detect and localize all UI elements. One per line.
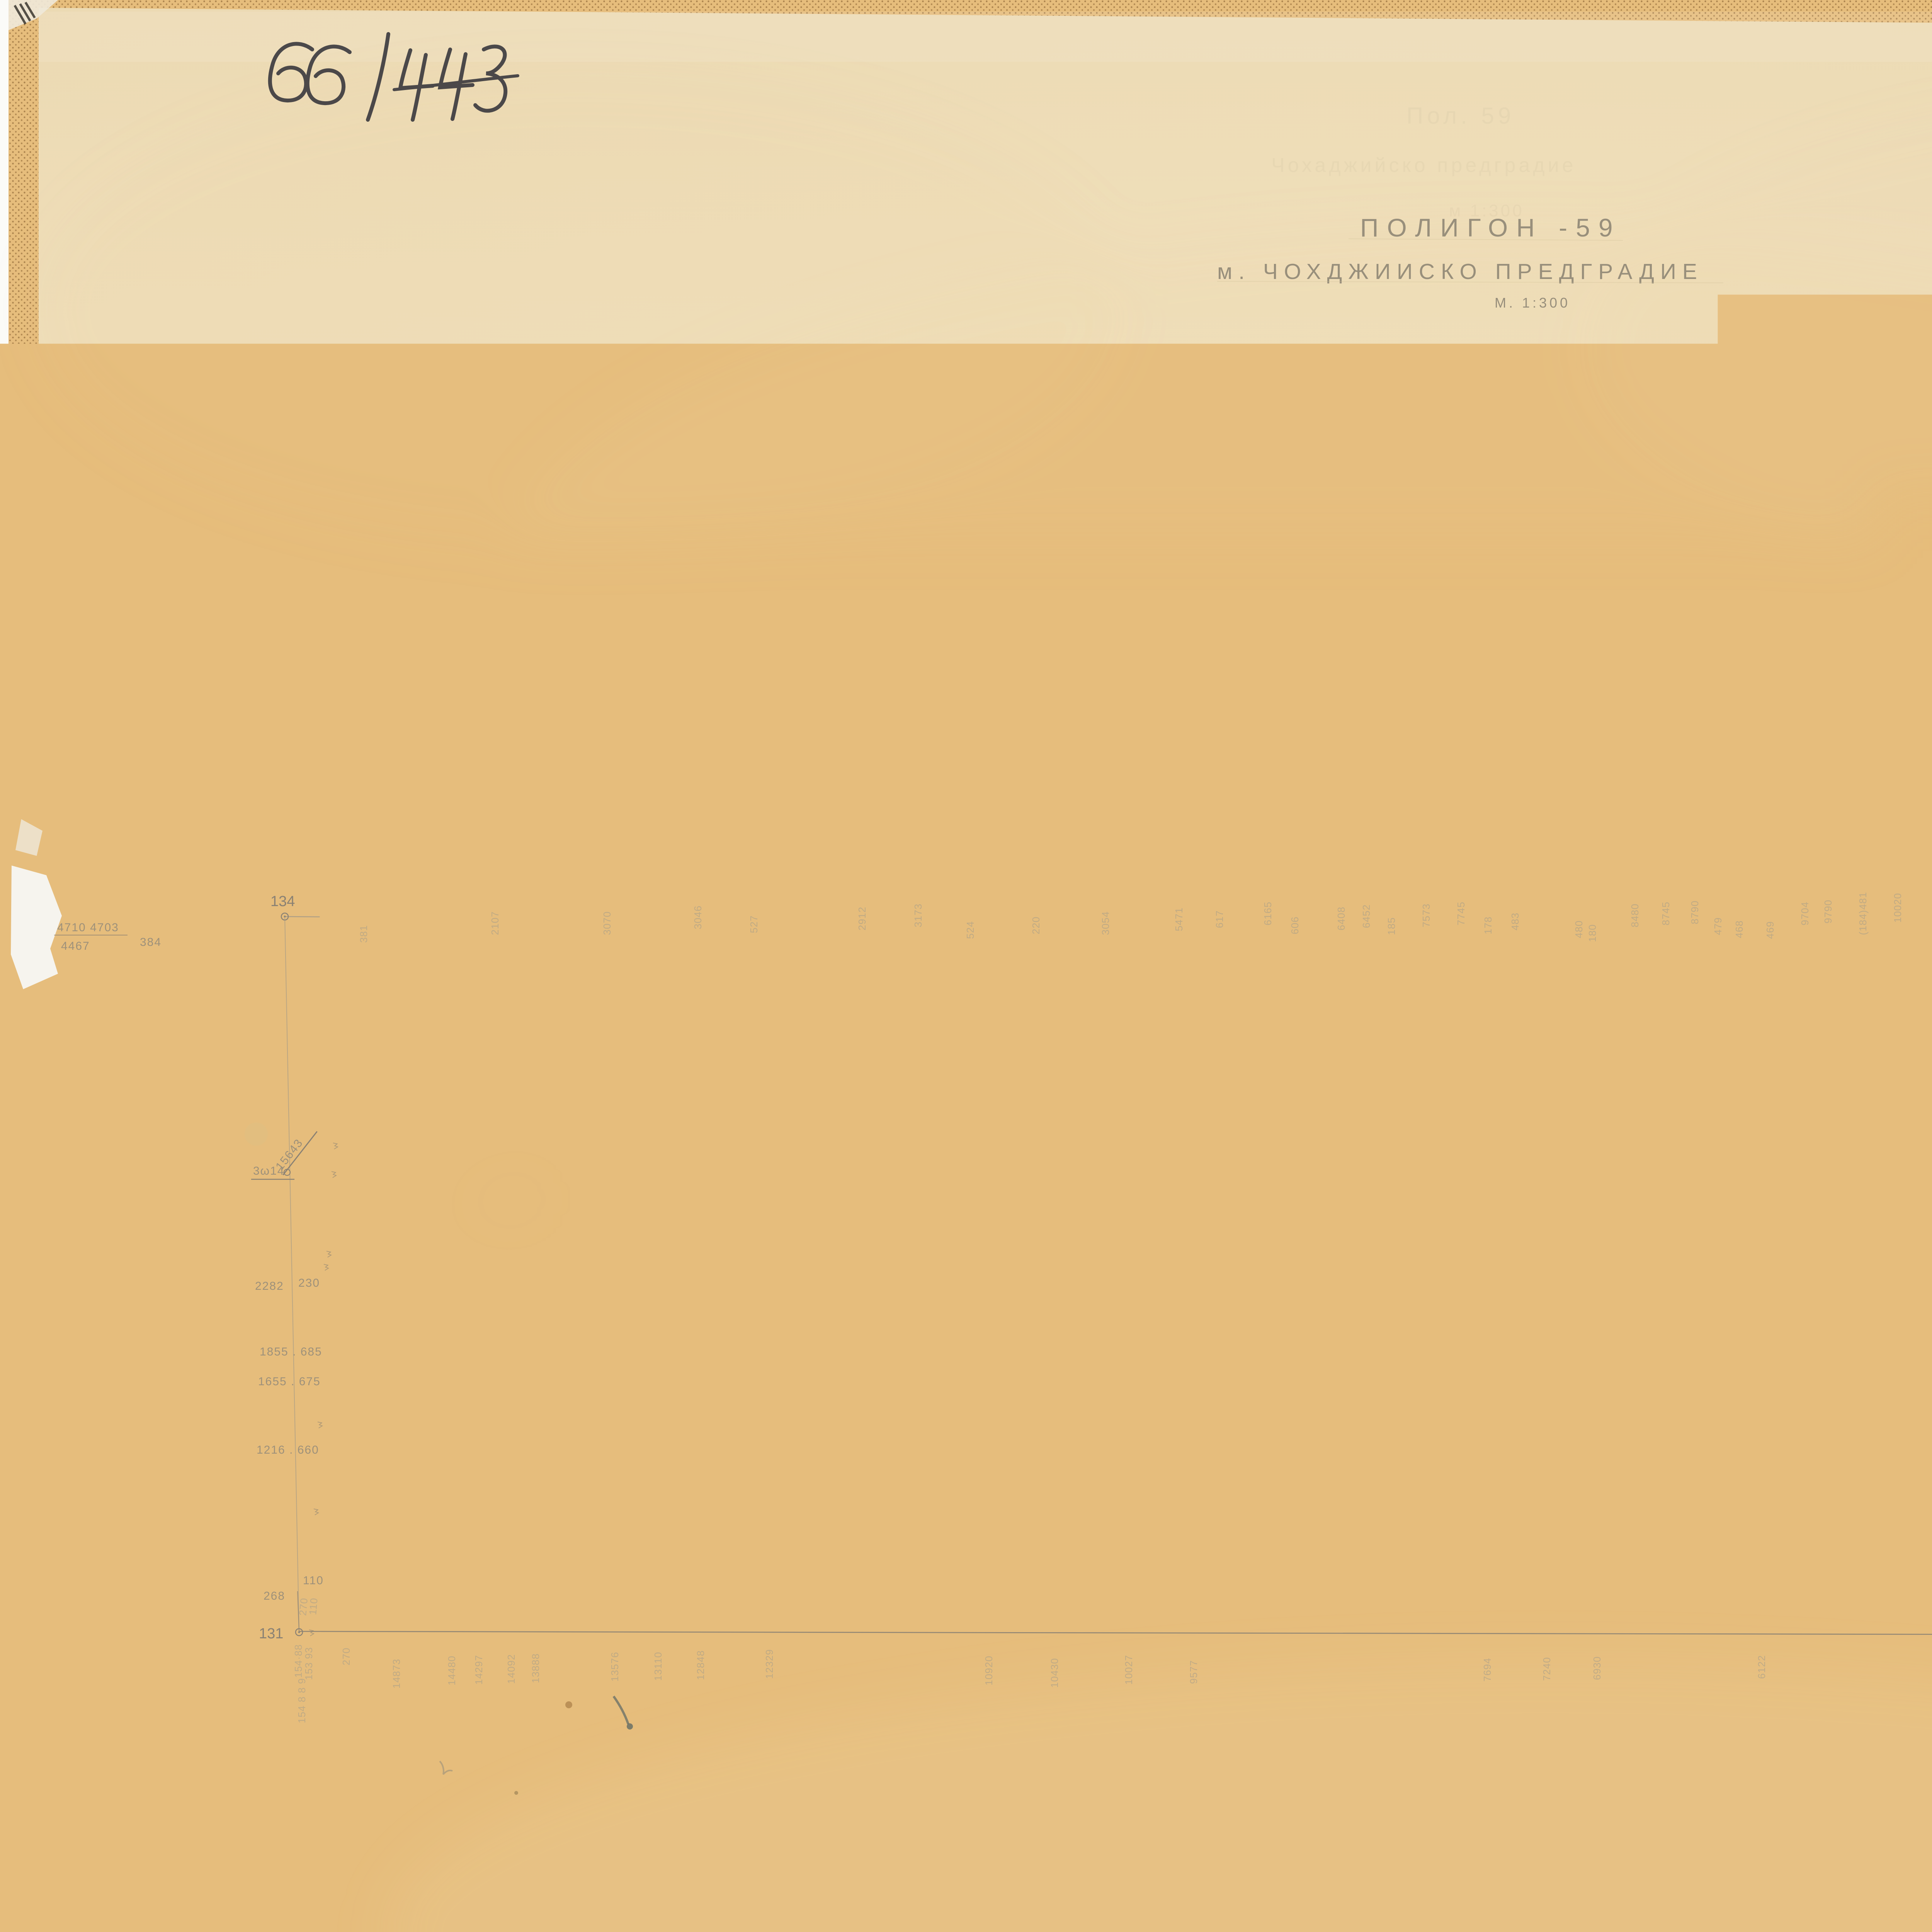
svg-text:2282: 2282 xyxy=(255,1280,284,1293)
svg-text:-285-: -285- xyxy=(1119,1417,1132,1448)
svg-text:-200-: -200- xyxy=(378,1340,391,1371)
svg-text:-504-: -504- xyxy=(1533,1098,1564,1111)
svg-text:Петър Георгиев Николов: Петър Георгиев Николов xyxy=(555,1410,754,1427)
svg-text:-805-: -805- xyxy=(1196,1371,1209,1402)
svg-text:273: 273 xyxy=(645,1357,658,1379)
svg-text:на N 15 XVIII дело 3174/: на N 15 XVIII дело 3174/55г. xyxy=(347,1558,547,1572)
svg-text:10920: 10920 xyxy=(983,1656,995,1685)
svg-text:7240: 7240 xyxy=(1541,1657,1553,1681)
svg-text:ПБ: ПБ xyxy=(1584,1027,1609,1042)
svg-text:12329: 12329 xyxy=(764,1649,775,1679)
svg-text:1417: 1417 xyxy=(1477,1092,1506,1105)
svg-text:-694-: -694- xyxy=(1162,1000,1193,1013)
svg-text:14092: 14092 xyxy=(505,1654,517,1684)
svg-text:-305-: -305- xyxy=(1537,1363,1550,1394)
svg-text:МЖ: МЖ xyxy=(1673,1404,1708,1422)
svg-text:154 8 8 9: 154 8 8 9 xyxy=(296,1678,308,1723)
svg-text:-457-: -457- xyxy=(726,1017,739,1048)
svg-text:270: 270 xyxy=(340,1648,352,1665)
svg-text:14480: 14480 xyxy=(446,1656,457,1685)
svg-text:Пол. 59: Пол. 59 xyxy=(1406,103,1515,129)
svg-text:185: 185 xyxy=(1386,917,1397,935)
svg-text:1074: 1074 xyxy=(514,1602,526,1626)
svg-text:1073: 1073 xyxy=(537,1603,549,1627)
svg-text:-1833-: -1833- xyxy=(1627,1604,1665,1617)
svg-text:-177-: -177- xyxy=(1806,1067,1819,1098)
svg-text:Панайотов: Панайотов xyxy=(422,1531,522,1550)
svg-text:4: 4 xyxy=(1491,1184,1502,1205)
svg-text:1294: 1294 xyxy=(1549,1615,1560,1639)
svg-text:-635-: -635- xyxy=(1526,984,1557,997)
svg-text:-634-: -634- xyxy=(1615,1032,1628,1063)
svg-text:9577: 9577 xyxy=(1188,1660,1199,1684)
svg-text:-230-: -230- xyxy=(1784,986,1815,999)
svg-text:10430: 10430 xyxy=(1049,1658,1060,1688)
svg-text:-2792-: -2792- xyxy=(560,934,599,946)
svg-text:345: 345 xyxy=(1222,1094,1235,1116)
svg-text:8480: 8480 xyxy=(1629,903,1641,927)
svg-text:МЖ: МЖ xyxy=(1153,1050,1188,1068)
svg-text:МЖ: МЖ xyxy=(1509,1026,1544,1044)
svg-text:6408: 6408 xyxy=(1335,906,1347,930)
svg-text:-3226-: -3226- xyxy=(1274,1605,1312,1618)
svg-text:3054: 3054 xyxy=(1100,911,1111,935)
svg-text:6122: 6122 xyxy=(1756,1655,1767,1679)
svg-text:-348-: -348- xyxy=(1904,1090,1932,1103)
svg-text:Йордан: Йордан xyxy=(833,1104,900,1124)
svg-text:10020: 10020 xyxy=(1892,893,1903,923)
svg-text:-439-: -439- xyxy=(509,1396,521,1427)
svg-text:252-: 252- xyxy=(682,1067,694,1094)
svg-text:-243-: -243- xyxy=(1238,998,1269,1010)
svg-text:1417: 1417 xyxy=(1121,1611,1133,1634)
svg-text:1255: 1255 xyxy=(1746,1617,1757,1641)
svg-text:1216 . 660: 1216 . 660 xyxy=(257,1444,319,1456)
svg-text:-252-: -252- xyxy=(627,1340,658,1353)
svg-text:ПБ: ПБ xyxy=(1570,1375,1594,1389)
svg-text:805-: 805- xyxy=(663,981,689,994)
svg-text:-332-: -332- xyxy=(662,1106,692,1119)
svg-text:НА 136 том V 836/54: НА 136 том V 836/54 xyxy=(1107,1197,1255,1212)
svg-text:ПБ: ПБ xyxy=(418,1357,441,1371)
svg-text:178: 178 xyxy=(1482,917,1494,934)
svg-text:Станчо Петков Карпаров: Станчо Петков Карпаров xyxy=(1692,1150,1925,1169)
svg-text:М. 1:300: М. 1:300 xyxy=(1495,295,1570,311)
svg-text:ПОЛИГОН -59: ПОЛИГОН -59 xyxy=(1360,213,1621,242)
svg-text:480: 480 xyxy=(1573,920,1585,938)
svg-text:-253-: -253- xyxy=(1784,1113,1815,1126)
svg-text:134: 134 xyxy=(270,893,295,910)
svg-text:-1427-: -1427- xyxy=(1855,939,1893,952)
svg-text:8790: 8790 xyxy=(1689,900,1701,924)
svg-text:Методи Асенов Алексов: Методи Асенов Алексов xyxy=(1189,1492,1403,1512)
svg-text:230: 230 xyxy=(298,1277,320,1289)
svg-text:3173: 3173 xyxy=(912,903,924,927)
svg-text:-728-: -728- xyxy=(1760,1036,1772,1067)
svg-text:13576: 13576 xyxy=(609,1652,621,1682)
svg-text:2107: 2107 xyxy=(489,911,501,935)
svg-text:1655 . 675: 1655 . 675 xyxy=(258,1375,321,1388)
svg-text:-1217-: -1217- xyxy=(1533,939,1571,952)
svg-text:381: 381 xyxy=(358,925,369,943)
svg-text:-914-: -914- xyxy=(1708,940,1739,952)
svg-text:н.а.: н.а. xyxy=(1314,1172,1337,1185)
svg-text:-449-: -449- xyxy=(1185,1138,1216,1151)
svg-text:на N 96 том XII дело 2076/: на N 96 том XII дело 2076/55г. xyxy=(1614,1493,1832,1507)
svg-text:268: 268 xyxy=(264,1590,285,1602)
svg-text:-484-: -484- xyxy=(1846,984,1877,997)
svg-text:156-: 156- xyxy=(437,1443,450,1469)
svg-text:-420: -420 xyxy=(361,1189,374,1211)
svg-text:-021-: -021- xyxy=(370,1227,384,1253)
svg-text:1916: 1916 xyxy=(686,1605,698,1629)
svg-text:617: 617 xyxy=(1214,910,1225,928)
svg-text:130: 130 xyxy=(1500,1069,1513,1090)
svg-text:Борис Светозаров: Борис Светозаров xyxy=(327,1509,492,1528)
svg-text:Любомир Иванов Милачов: Любомир Иванов Милачов xyxy=(1189,1469,1423,1488)
svg-text:-390-: -390- xyxy=(410,1445,441,1458)
svg-text:-544-: -544- xyxy=(1100,1044,1112,1075)
svg-text:-262-: -262- xyxy=(1591,1097,1622,1109)
svg-text:Живко Петров Димитр.: Живко Петров Димитр. xyxy=(788,1409,980,1426)
svg-text:-1398-: -1398- xyxy=(1180,936,1219,949)
svg-text:ПЖ: ПЖ xyxy=(1228,1041,1252,1053)
svg-text:-1121-: -1121- xyxy=(1371,934,1408,947)
svg-text:220-: 220- xyxy=(1594,1408,1607,1434)
svg-text:3ω14: 3ω14 xyxy=(253,1165,284,1177)
svg-text:-439-: -439- xyxy=(376,1396,389,1427)
svg-text:Георгиев: Георгиев xyxy=(1125,1175,1204,1195)
svg-text:468: 468 xyxy=(1733,920,1745,938)
svg-text:110: 110 xyxy=(303,1574,324,1587)
svg-text:ПЖ: ПЖ xyxy=(1835,1033,1860,1046)
svg-text:606: 606 xyxy=(1289,917,1301,934)
svg-text:13110: 13110 xyxy=(652,1652,664,1681)
svg-text:ПЖ: ПЖ xyxy=(454,1454,475,1465)
svg-text:212: 212 xyxy=(840,1614,852,1631)
svg-text:6165: 6165 xyxy=(1262,901,1274,925)
svg-text:8745: 8745 xyxy=(1660,901,1672,925)
svg-text:(184)481: (184)481 xyxy=(1857,892,1869,935)
svg-text:921=: 921= xyxy=(339,1235,353,1260)
svg-text:3: 3 xyxy=(1165,1212,1175,1233)
svg-text:1855 . 685: 1855 . 685 xyxy=(260,1345,322,1358)
svg-text:-2888-: -2888- xyxy=(1789,1609,1827,1622)
svg-text:-454-: -454- xyxy=(1152,1456,1183,1469)
svg-text:3070: 3070 xyxy=(601,911,613,935)
svg-text:11: 11 xyxy=(865,1470,883,1489)
svg-text:1230: 1230 xyxy=(468,1602,480,1626)
svg-text:10: 10 xyxy=(1291,1403,1310,1422)
svg-text:4806: 4806 xyxy=(1920,1696,1931,1720)
svg-text:5: 5 xyxy=(1776,1191,1786,1212)
svg-text:-521-: -521- xyxy=(1052,1359,1065,1390)
svg-text:-204-: -204- xyxy=(706,1066,737,1078)
svg-text:9790: 9790 xyxy=(1822,900,1834,923)
svg-text:4467: 4467 xyxy=(61,940,90,952)
svg-text:-196-: -196- xyxy=(455,1467,486,1480)
svg-text:1645: 1645 xyxy=(743,1606,755,1630)
svg-text:Чохаджийско предградие: Чохаджийско предградие xyxy=(1271,154,1577,177)
svg-text:-460-: -460- xyxy=(414,1332,445,1345)
svg-text:н. а.: н. а. xyxy=(1854,1173,1882,1186)
svg-text:Радка Иванова Симеонова: Радка Иванова Симеонова xyxy=(347,1008,583,1028)
svg-text:н. а. 195 XIII 265: н. а. 195 XIII 2656/55г. xyxy=(1214,1514,1376,1529)
svg-text:469: 469 xyxy=(1764,921,1776,939)
svg-text:7573: 7573 xyxy=(1420,903,1432,927)
svg-text:154·88: 154·88 xyxy=(293,1644,304,1678)
svg-text:-425-: -425- xyxy=(1767,1394,1780,1425)
svg-text:131: 131 xyxy=(259,1626,283,1642)
svg-text:12848: 12848 xyxy=(695,1650,706,1680)
svg-text:-265-: -265- xyxy=(1595,983,1626,996)
svg-text:1655: 1655 xyxy=(763,1606,774,1630)
svg-text:13888: 13888 xyxy=(530,1653,541,1683)
svg-text:Петър Велков Цоков: Петър Велков Цоков xyxy=(1554,1467,1738,1487)
svg-text:483: 483 xyxy=(1509,913,1521,930)
svg-text:3046: 3046 xyxy=(692,905,704,929)
svg-text:-802-: -802- xyxy=(1696,1447,1726,1460)
svg-text:1512: 1512 xyxy=(1501,1614,1512,1638)
svg-text:479: 479 xyxy=(1712,917,1724,935)
svg-text:241: 241 xyxy=(604,1610,616,1628)
svg-text:-504-: -504- xyxy=(1450,1022,1463,1053)
svg-text:524: 524 xyxy=(964,921,976,939)
svg-text:м. ЧОХДЖИИСКО ПРЕДГРАДИЕ: м. ЧОХДЖИИСКО ПРЕДГРАДИЕ xyxy=(1217,259,1703,284)
svg-text:12: 12 xyxy=(659,1474,678,1493)
svg-text:МЖ: МЖ xyxy=(643,1311,678,1330)
svg-text:110: 110 xyxy=(307,1597,320,1616)
svg-text:-1505-: -1505- xyxy=(425,1594,463,1607)
svg-text:-460-: -460- xyxy=(585,1019,598,1050)
svg-text:Петър Станиславов: Петър Станиславов xyxy=(1061,1152,1245,1172)
svg-text:5471: 5471 xyxy=(1173,907,1185,931)
svg-text:10027: 10027 xyxy=(1123,1655,1134,1685)
svg-text:255: 255 xyxy=(628,1073,641,1094)
svg-text:МЖ: МЖ xyxy=(649,1025,684,1043)
svg-text:6452: 6452 xyxy=(1361,904,1372,928)
svg-text:572: 572 xyxy=(703,1332,716,1353)
svg-text:-243-: -243- xyxy=(1128,1105,1158,1118)
svg-text:1216: 1216 xyxy=(571,1604,583,1628)
svg-text:-351-: -351- xyxy=(1900,987,1931,1000)
svg-text:-2187-: -2187- xyxy=(316,1082,329,1121)
svg-text:220: 220 xyxy=(1030,917,1042,934)
svg-text:1: 1 xyxy=(516,1102,527,1123)
svg-text:163: 163 xyxy=(1282,1619,1294,1636)
svg-text:-537-: -537- xyxy=(645,1278,675,1291)
svg-text:-273-: -273- xyxy=(672,1386,702,1398)
svg-text:180: 180 xyxy=(1587,924,1598,942)
svg-text:14297: 14297 xyxy=(473,1655,485,1685)
svg-text:-321-: -321- xyxy=(472,1362,503,1375)
svg-text:-205-: -205- xyxy=(484,1444,515,1456)
svg-text:-408-: -408- xyxy=(1839,1089,1870,1102)
svg-text:МЖ: МЖ xyxy=(1101,1357,1136,1375)
svg-text:7694: 7694 xyxy=(1481,1658,1493,1682)
svg-text:14873: 14873 xyxy=(391,1659,402,1689)
svg-text:9: 9 xyxy=(1782,1432,1793,1453)
svg-text:ПБ: ПБ xyxy=(731,1225,753,1238)
svg-text:7745: 7745 xyxy=(1455,901,1467,925)
svg-text:-830-: -830- xyxy=(1108,1322,1139,1335)
svg-text:6930: 6930 xyxy=(1591,1656,1603,1680)
svg-text:4710 4703: 4710 4703 xyxy=(57,921,119,934)
svg-text:-335-: -335- xyxy=(1564,1342,1595,1354)
svg-text:-790-: -790- xyxy=(1689,1359,1720,1371)
svg-text:-1231: -1231 xyxy=(1236,1082,1269,1094)
svg-text:н.а. 157 том V 857/54г: н.а. 157 том V 857/54г. xyxy=(397,1034,562,1049)
svg-text:153 93: 153 93 xyxy=(303,1647,315,1680)
svg-text:МЖ: МЖ xyxy=(437,1403,471,1421)
svg-text:527: 527 xyxy=(748,915,760,933)
svg-text:Нанко Петков Карпаров: Нанко Петков Карпаров xyxy=(1297,1150,1516,1170)
svg-text:384: 384 xyxy=(140,936,162,949)
svg-text:-1409-: -1409- xyxy=(957,1603,996,1616)
svg-text:на N 104 XXII дело 4027/: на N 104 XXII дело 4027/55 xyxy=(569,1430,760,1444)
svg-text:167—: 167— xyxy=(1450,1272,1484,1285)
svg-text:188: 188 xyxy=(1069,1616,1080,1634)
svg-text:ПЖ: ПЖ xyxy=(1784,1034,1806,1046)
svg-text:9704: 9704 xyxy=(1799,901,1811,925)
svg-text:2912: 2912 xyxy=(856,906,868,930)
svg-text:ПЖ: ПЖ xyxy=(1902,1034,1927,1047)
